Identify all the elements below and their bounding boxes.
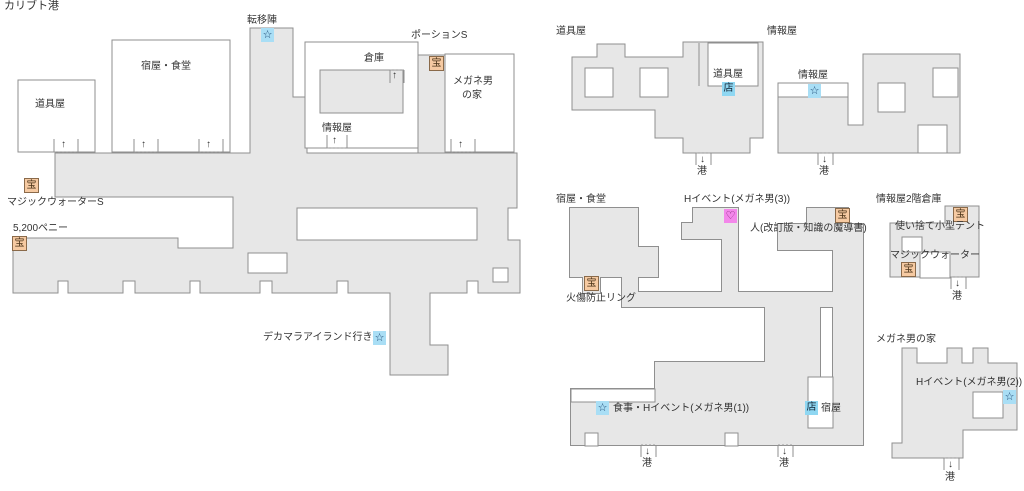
burn-ring-label: 火傷防止リング xyxy=(566,293,636,304)
warehouse2f-port-label: 港 xyxy=(952,291,962,302)
magic-water2-treasure-marker: 宝 xyxy=(901,262,916,277)
info-shop-room-label: 情報屋 xyxy=(798,70,828,81)
game-map-page: カリブト港 転移陣 ☆ 宿屋・食堂 道具屋 倉庫 ポーションS 宝 メガネ男 の… xyxy=(0,0,1024,491)
street-block xyxy=(493,268,508,282)
magic-water-label: マジックウォーターS xyxy=(7,197,104,208)
inn-treasure-marker-top: 宝 xyxy=(835,208,850,223)
person-label: 人(改訂版・知識の魔導書) xyxy=(750,223,867,234)
info-shop-star-marker: ☆ xyxy=(808,84,821,98)
inn-map xyxy=(570,208,863,457)
map-shapes xyxy=(0,0,1024,491)
glasses-house-label-line1: メガネ男 xyxy=(453,76,493,87)
inn-exit-arrow-right: ↓ xyxy=(782,447,787,457)
inn-door-arrow-right: ↑ xyxy=(206,140,211,150)
h-event3-heart-marker: ♡ xyxy=(724,209,737,223)
info-shop-port-label: 港 xyxy=(819,166,829,177)
meal-room xyxy=(571,389,655,402)
inn-door-arrow-left: ↑ xyxy=(141,140,146,150)
glasses-house-label-line2: の家 xyxy=(462,90,482,101)
teleport-label: 転移陣 xyxy=(247,15,277,26)
street-gap xyxy=(297,208,477,240)
item-shop-exit-arrow: ↓ xyxy=(700,155,705,165)
item-shop-map xyxy=(572,42,763,165)
magic-water2-label: マジックウォーター xyxy=(890,250,980,261)
info-shop-label: 情報屋 xyxy=(322,123,352,134)
glasses-house-door-arrow: ↑ xyxy=(458,140,463,150)
glasses-house-exit-arrow: ↓ xyxy=(948,460,953,470)
warehouse-label: 倉庫 xyxy=(364,53,384,64)
inn-label: 宿屋・食堂 xyxy=(141,61,191,72)
inn-building xyxy=(112,40,230,152)
item-shop-shop-marker: 店 xyxy=(722,82,735,96)
inn-port-label-right: 港 xyxy=(779,458,789,469)
glasses-house-port-label: 港 xyxy=(945,472,955,483)
h-event3-label: Hイベント(メガネ男(3)) xyxy=(684,194,790,205)
potion-label: ポーションS xyxy=(411,30,467,41)
warehouse2f-exit-arrow: ↓ xyxy=(955,279,960,289)
burn-ring-treasure-marker: 宝 xyxy=(584,276,599,291)
item-shop-room-label: 道具屋 xyxy=(713,69,743,80)
glasses-house-map xyxy=(892,348,1017,470)
meal-event-label: 食事・Hイベント(メガネ男(1)) xyxy=(613,403,749,414)
page-title: カリブト港 xyxy=(4,1,59,12)
h-event2-label: Hイベント(メガネ男(2)) xyxy=(916,377,1022,388)
potion-treasure-marker: 宝 xyxy=(429,56,444,71)
info-shop-map-title: 情報屋 xyxy=(767,26,797,37)
ship-star-marker: ☆ xyxy=(373,331,386,345)
warehouse-door-arrow: ↑ xyxy=(392,71,397,81)
penny-treasure-marker: 宝 xyxy=(12,236,27,251)
inn-map-title: 宿屋・食堂 xyxy=(556,194,606,205)
inn-port-label-left: 港 xyxy=(642,458,652,469)
courtyard xyxy=(320,70,403,113)
magic-water-treasure-marker: 宝 xyxy=(24,178,39,193)
h-event2-star-marker: ☆ xyxy=(1003,390,1016,404)
meal-event-star-marker: ☆ xyxy=(596,401,609,415)
item-shop-door-arrow: ↑ xyxy=(61,140,66,150)
tent-label: 使い捨て小型テント xyxy=(895,221,985,232)
info-shop-exit-arrow: ↓ xyxy=(822,155,827,165)
inn-exit-arrow-left: ↓ xyxy=(645,447,650,457)
teleport-star-marker: ☆ xyxy=(261,28,274,42)
tent-treasure-marker: 宝 xyxy=(953,207,968,222)
street-notch xyxy=(248,253,287,273)
info-shop-door-arrow: ↑ xyxy=(332,136,337,146)
penny-label: 5,200ペニー xyxy=(13,223,68,234)
ship-label: デカマラアイランド行き船 xyxy=(263,332,383,343)
item-shop-port-label: 港 xyxy=(697,166,707,177)
inn-shop-marker: 店 xyxy=(805,401,818,415)
inn-room-label: 宿屋 xyxy=(821,403,841,414)
warehouse2f-map-title: 情報屋2階倉庫 xyxy=(876,194,942,205)
glasses-man-house-building xyxy=(445,54,514,152)
item-shop-label: 道具屋 xyxy=(35,99,65,110)
item-shop-building xyxy=(18,80,95,152)
item-shop-map-title: 道具屋 xyxy=(556,26,586,37)
glasses-house-map-title: メガネ男の家 xyxy=(876,334,936,345)
